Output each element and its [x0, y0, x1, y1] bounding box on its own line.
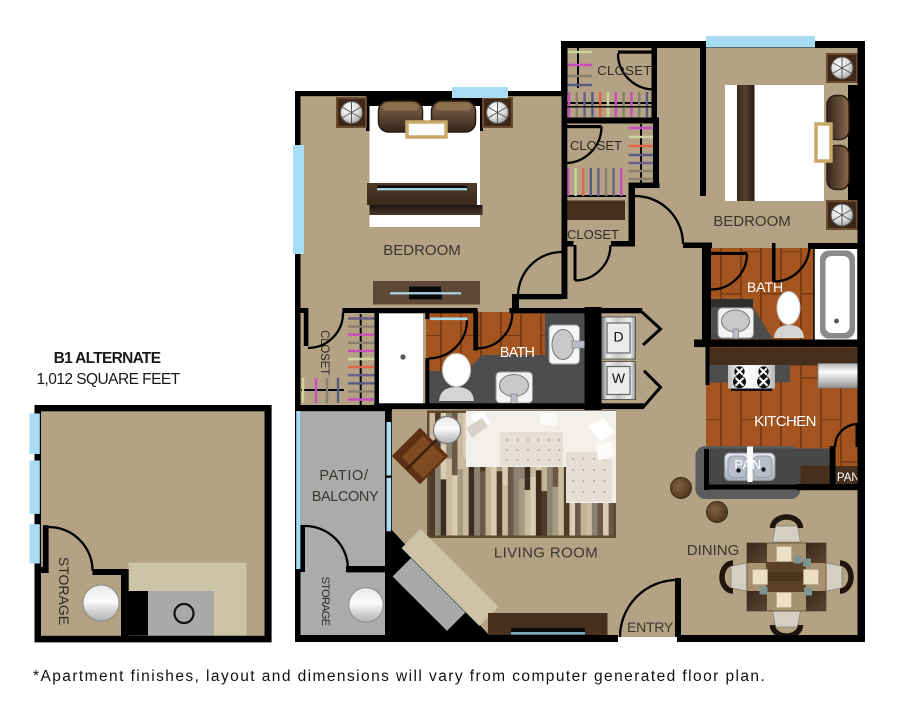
svg-text:STORAGE: STORAGE — [56, 557, 72, 625]
svg-text:ENTRY: ENTRY — [627, 619, 674, 635]
svg-text:D: D — [613, 329, 623, 345]
svg-text:CLOSET: CLOSET — [318, 330, 330, 375]
svg-text:BEDROOM: BEDROOM — [383, 242, 461, 259]
svg-text:*Apartment finishes, layout an: *Apartment finishes, layout and dimensio… — [33, 668, 766, 685]
svg-text:W: W — [612, 370, 626, 386]
svg-text:CLOSET: CLOSET — [570, 138, 622, 153]
svg-text:B1 ALTERNATE: B1 ALTERNATE — [54, 350, 161, 367]
svg-text:BEDROOM: BEDROOM — [713, 213, 791, 230]
svg-text:KITCHEN: KITCHEN — [754, 413, 816, 430]
svg-text:CLOSET: CLOSET — [567, 227, 619, 242]
svg-text:PAN: PAN — [837, 472, 860, 484]
svg-text:LIVING ROOM: LIVING ROOM — [494, 545, 598, 562]
svg-text:BATH: BATH — [500, 345, 535, 361]
svg-text:STORAGE: STORAGE — [319, 577, 331, 626]
svg-text:1,012 SQUARE FEET: 1,012 SQUARE FEET — [36, 371, 180, 388]
svg-text:CLOSET: CLOSET — [597, 63, 652, 78]
svg-text:PATIO/: PATIO/ — [319, 468, 369, 484]
svg-text:BALCONY: BALCONY — [312, 489, 379, 505]
svg-text:PAN: PAN — [734, 457, 762, 472]
svg-text:DINING: DINING — [687, 542, 740, 559]
